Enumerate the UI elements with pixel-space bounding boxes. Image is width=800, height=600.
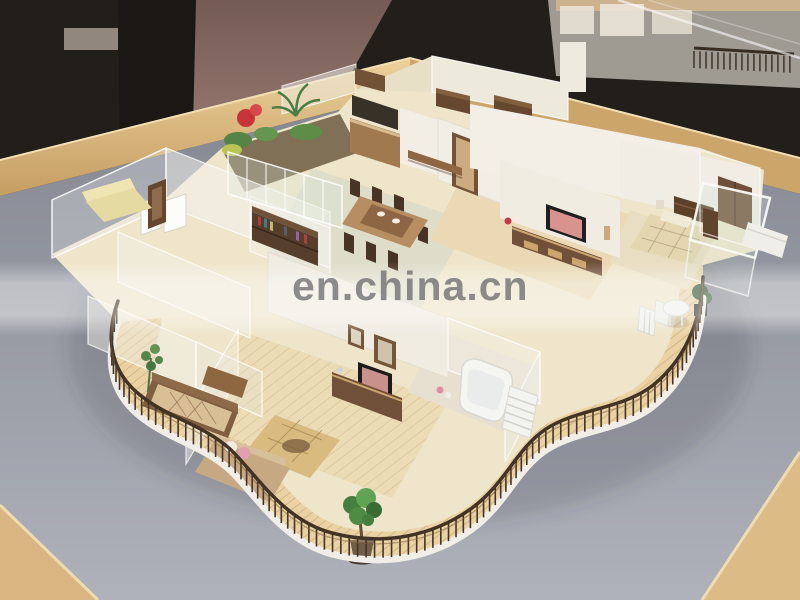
patio-table <box>663 300 689 316</box>
dish <box>377 212 385 217</box>
wall-highlight <box>64 28 118 50</box>
dish <box>392 219 400 224</box>
background-model-block <box>560 6 594 34</box>
patio-chair <box>638 306 656 336</box>
background-model-block <box>600 4 644 36</box>
tall-cabinet <box>560 42 586 92</box>
scene <box>0 0 800 600</box>
picture-frame <box>164 194 186 233</box>
photograph: en.china.cn <box>0 0 800 600</box>
nightstand <box>656 200 664 209</box>
rug-center <box>282 439 310 453</box>
bowl <box>337 367 343 373</box>
toiletries <box>437 387 444 394</box>
figurine <box>604 226 610 240</box>
toiletries <box>445 392 451 398</box>
red-vase <box>505 218 512 225</box>
table-lamp <box>656 192 665 201</box>
